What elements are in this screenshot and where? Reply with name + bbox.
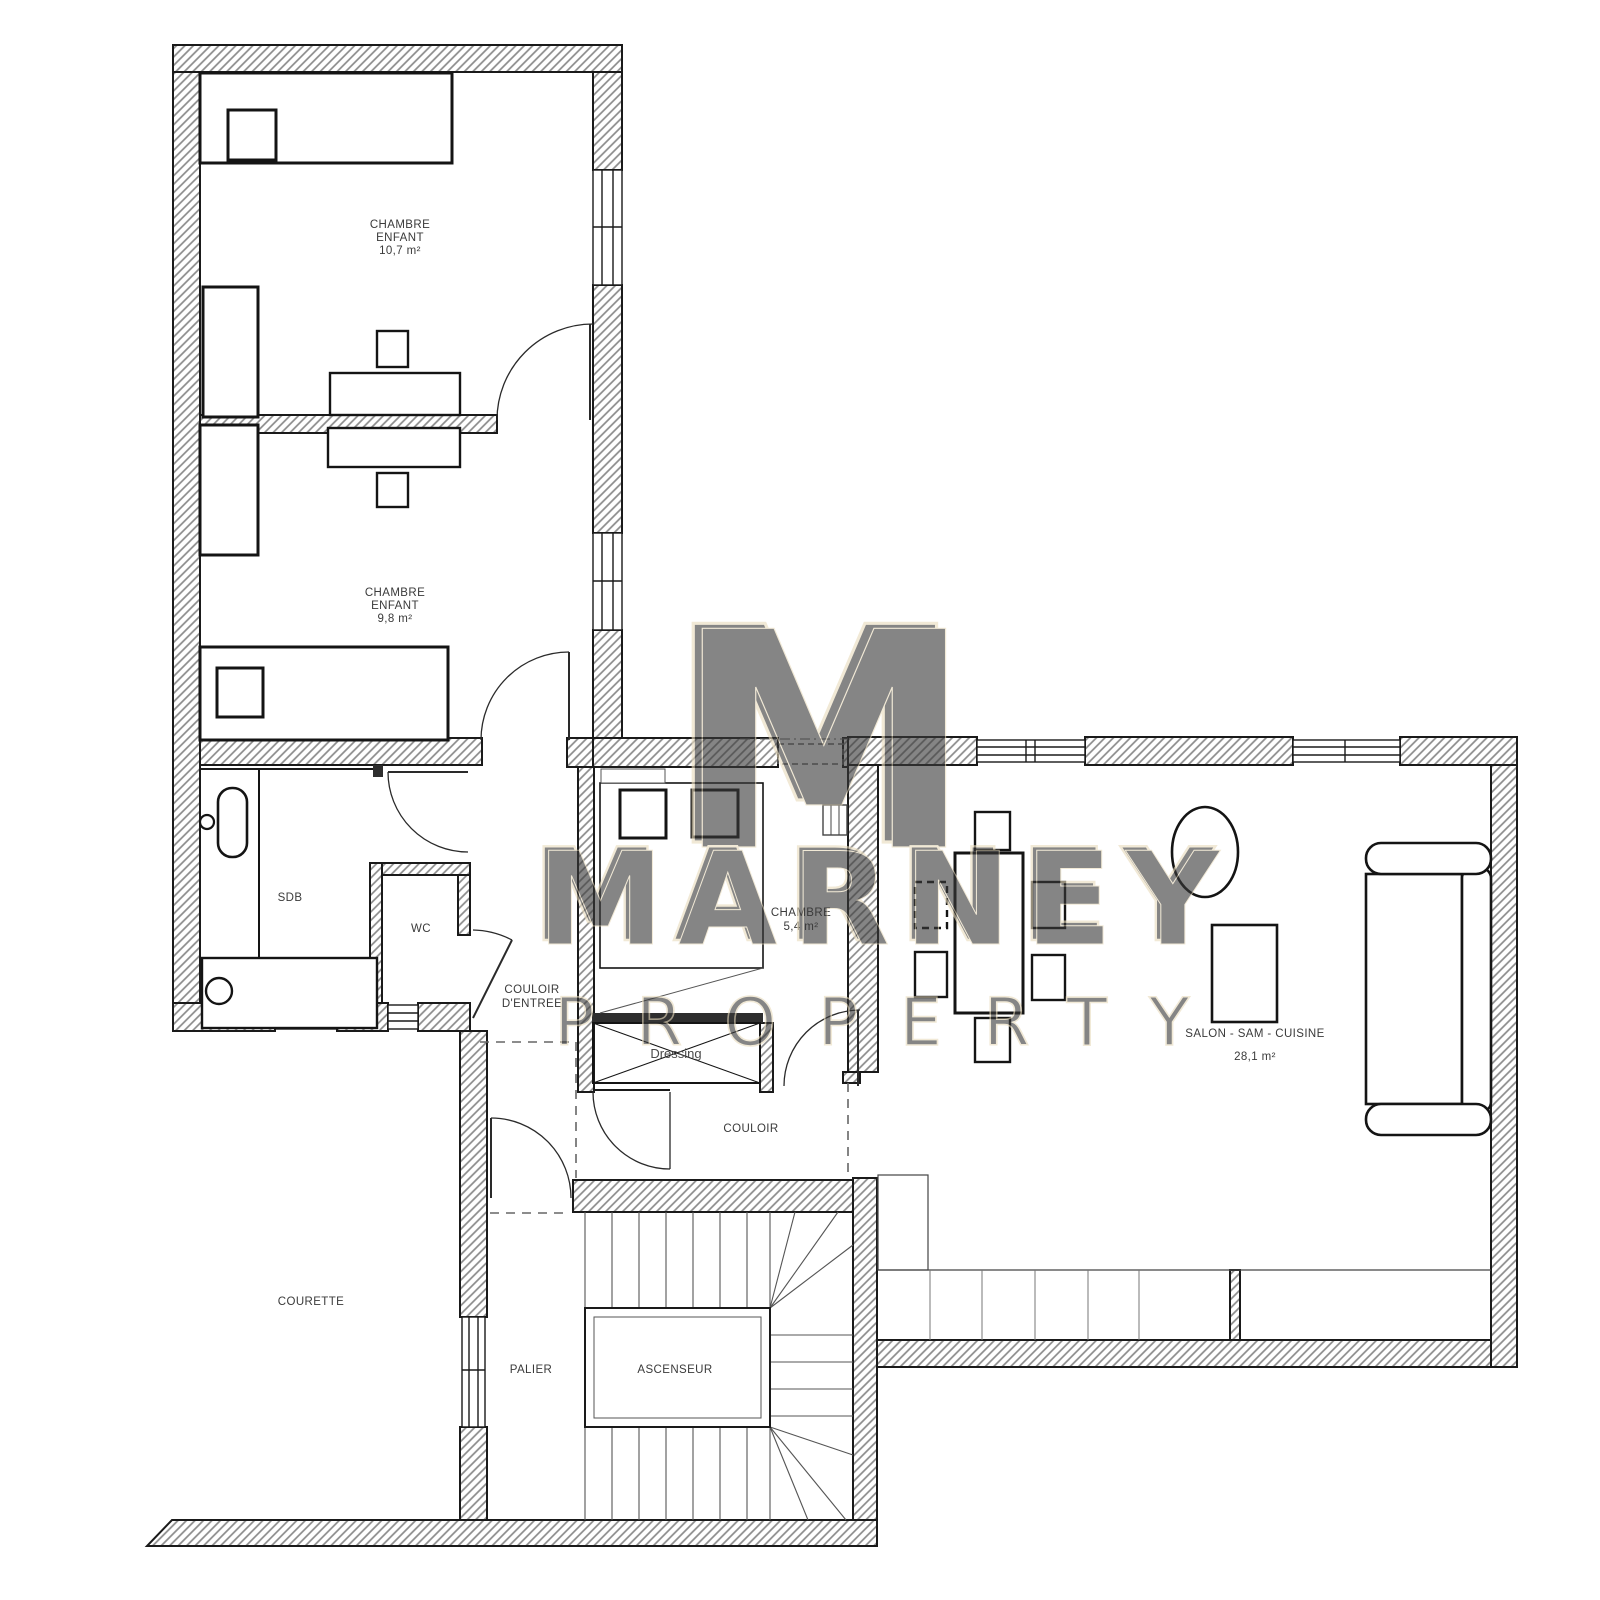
door-room2 <box>481 652 569 740</box>
window-room2 <box>593 533 622 630</box>
wall-kitchen-partition <box>1230 1270 1240 1340</box>
furniture-room1 <box>200 73 460 417</box>
wall-stair-top <box>573 1180 853 1212</box>
wall-palier-left-b <box>460 1427 487 1520</box>
label-room1-area: 10,7 m² <box>379 245 421 257</box>
headboard <box>601 769 665 783</box>
window-palier <box>462 1317 485 1427</box>
wall-left <box>173 72 200 1031</box>
kitchen-counter <box>878 1175 1491 1340</box>
door-sdb <box>388 772 468 852</box>
window-wc <box>388 1005 418 1029</box>
wardrobe <box>203 287 258 417</box>
wall-salon-right <box>1491 765 1517 1367</box>
tall-cabinet <box>878 1175 928 1270</box>
watermark-subtitle: PROPERTY <box>555 984 1232 1061</box>
door-dressing <box>593 1092 670 1169</box>
desk <box>328 428 460 467</box>
label-living-area: 28,1 m² <box>1234 1051 1276 1063</box>
wall-wc-right <box>458 875 470 935</box>
wall-salon-top-c <box>1400 737 1517 765</box>
label-courette: COURETTE <box>278 1296 344 1308</box>
window-salon-1 <box>977 740 1085 762</box>
label-palier: PALIER <box>510 1364 552 1376</box>
pillow <box>217 668 263 717</box>
watermark-name-echo: MARNEY <box>537 826 1233 975</box>
pillow <box>228 110 276 160</box>
wall-right-b <box>593 285 622 533</box>
floor-plan-page: CHAMBRE ENFANT 10,7 m² CHAMBRE ENFANT 9,… <box>0 0 1600 1600</box>
desk <box>330 373 460 415</box>
label-entry-line1: COULOIR <box>504 984 559 996</box>
wall-sdb-bottom-c <box>418 1003 470 1031</box>
wall-sdb-jamb <box>373 765 383 777</box>
label-room1-line2: ENFANT <box>376 232 424 244</box>
wall-wc-top <box>382 863 470 875</box>
window-room1 <box>593 170 622 285</box>
wall-salon-bottom <box>877 1340 1491 1367</box>
label-room2-line1: CHAMBRE <box>365 587 425 599</box>
window-salon-2 <box>1293 740 1400 762</box>
door-entry <box>491 1118 571 1198</box>
sofa-body <box>1366 874 1462 1104</box>
label-couloir: COULOIR <box>723 1123 778 1135</box>
wall-right-a <box>593 72 622 170</box>
wall-palier-left-a <box>460 1031 487 1317</box>
label-room1-line1: CHAMBRE <box>370 219 430 231</box>
wall-jamb <box>567 738 593 767</box>
label-entry-line2: D'ENTREE <box>502 998 562 1010</box>
wall-top <box>173 45 622 72</box>
faucet <box>200 815 214 829</box>
wardrobe <box>200 425 258 555</box>
wall-right-c <box>593 630 622 738</box>
chair <box>377 331 408 367</box>
sofa-arm-bottom <box>1366 1104 1491 1135</box>
wall-stair-right <box>853 1178 877 1520</box>
label-room2-area: 9,8 m² <box>378 613 413 625</box>
wall-room2-bottom <box>200 738 482 765</box>
label-ascenseur: ASCENSEUR <box>637 1364 712 1376</box>
label-room2-line2: ENFANT <box>371 600 419 612</box>
wall-salon-top-b <box>1085 737 1293 765</box>
column-fixture <box>218 788 247 857</box>
furniture-room2 <box>200 425 460 740</box>
sofa-back <box>1462 868 1491 1112</box>
floor-plan-drawing: CHAMBRE ENFANT 10,7 m² CHAMBRE ENFANT 9,… <box>0 0 1600 1600</box>
sink <box>206 978 232 1004</box>
chair <box>377 473 408 507</box>
label-wc: WC <box>411 923 431 935</box>
wall-bottom <box>147 1520 877 1546</box>
label-sdb: SDB <box>278 892 303 904</box>
sofa-arm-top <box>1366 843 1491 874</box>
door-room1 <box>497 324 593 420</box>
